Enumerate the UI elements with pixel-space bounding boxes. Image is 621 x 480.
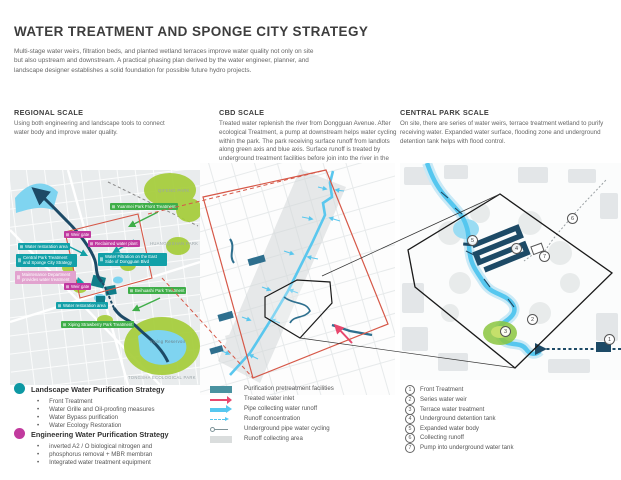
runoff-area-swatch: [210, 436, 232, 443]
tag-central-park-treatment: Central Park Treatment and Sponge City S…: [16, 254, 77, 267]
regional-scale-heading: REGIONAL SCALE: [14, 108, 83, 117]
cbd-map-panel: [200, 163, 395, 395]
map-marker-1: 1: [604, 334, 615, 345]
intro-paragraph: Multi-stage water weirs, filtration beds…: [14, 47, 316, 75]
engineering-strategy-title: Engineering Water Purification Strategy: [31, 430, 169, 439]
map-marker-5: 5: [467, 235, 478, 246]
tag-xiping-strawberry-park-treatment: Xiping Strawberry Park Treatment: [61, 321, 134, 328]
landscape-item-1: Front Treatment: [37, 398, 93, 405]
engineering-strategy-dot: [14, 428, 25, 439]
landscape-strategy-dot: [14, 383, 25, 394]
map-marker-2: 2: [527, 314, 538, 325]
page-title: WATER TREATMENT AND SPONGE CITY STRATEGY: [14, 24, 368, 39]
underground-pipe-swatch: [214, 429, 228, 430]
tag-weir-gate-lower: Weir gate: [64, 283, 91, 290]
tag-water-restoration-area-2: Water restoration area: [56, 302, 108, 309]
engineering-item-1: inverted A2 / O biological nitrogen and: [37, 443, 152, 450]
treated-water-inlet-swatch: [210, 399, 227, 401]
tag-weir-gate-upper: Weir gate: [64, 231, 91, 238]
cbd-map-graphic: [200, 163, 395, 395]
engineering-item-3: Integrated water treatment equipment: [37, 459, 151, 466]
pipe-collecting-swatch: [210, 408, 226, 413]
place-huangqishan-park: HUANGQISHAN PARK: [150, 241, 198, 246]
map-marker-6: 6: [567, 213, 578, 224]
landscape-strategy-title: Landscape Water Purification Strategy: [31, 385, 165, 394]
facility-swatch: [210, 386, 232, 393]
tag-yuanmei-park-front-treatment: Yuanmei Park Front Treatment: [110, 203, 178, 210]
tag-beihuashi-park-treatment: Beihuashi Park Treatment: [128, 287, 186, 294]
tag-maintenance-department: Maintenance Department provides water tr…: [15, 271, 76, 284]
tag-water-filtration-dongguan-blvd: Water Filtration on the East Side of Don…: [98, 253, 167, 266]
regional-scale-body: Using both engineering and landscape too…: [14, 120, 179, 138]
landscape-item-3: Water Bypass purification: [37, 414, 118, 421]
tag-water-restoration-area-1: Water restoration area: [18, 243, 70, 250]
place-tongsha-ecological-park: TONGSHA ECOLOGICAL PARK: [128, 375, 196, 380]
tag-reclaimed-water-plant: Reclaimed water plant: [88, 240, 140, 247]
central-park-map-panel: [400, 163, 621, 380]
central-park-map-graphic: [400, 163, 621, 380]
runoff-concentration-swatch: [210, 419, 225, 420]
place-qifeng-park: QIFENG PARK: [158, 188, 190, 193]
engineering-item-2: phosphorus removal + MBR membran: [37, 451, 152, 458]
regional-map-panel: QIFENG PARK HUANGQISHAN PARK Xiping Rese…: [10, 170, 200, 385]
landscape-item-4: Water Ecology Restoration: [37, 422, 121, 429]
central-park-scale-body: On site, there are series of water weirs…: [400, 120, 607, 146]
map-marker-7: 7: [539, 251, 550, 262]
map-marker-3: 3: [500, 326, 511, 337]
cbd-scale-heading: CBD SCALE: [219, 108, 264, 117]
landscape-item-2: Water Grille and Oil-proofing measures: [37, 406, 155, 413]
strategy-board: WATER TREATMENT AND SPONGE CITY STRATEGY…: [0, 0, 621, 480]
place-xiping-reservoir: Xiping Reservoir: [150, 339, 186, 344]
map-marker-4: 4: [511, 243, 522, 254]
central-park-scale-heading: CENTRAL PARK SCALE: [400, 108, 489, 117]
